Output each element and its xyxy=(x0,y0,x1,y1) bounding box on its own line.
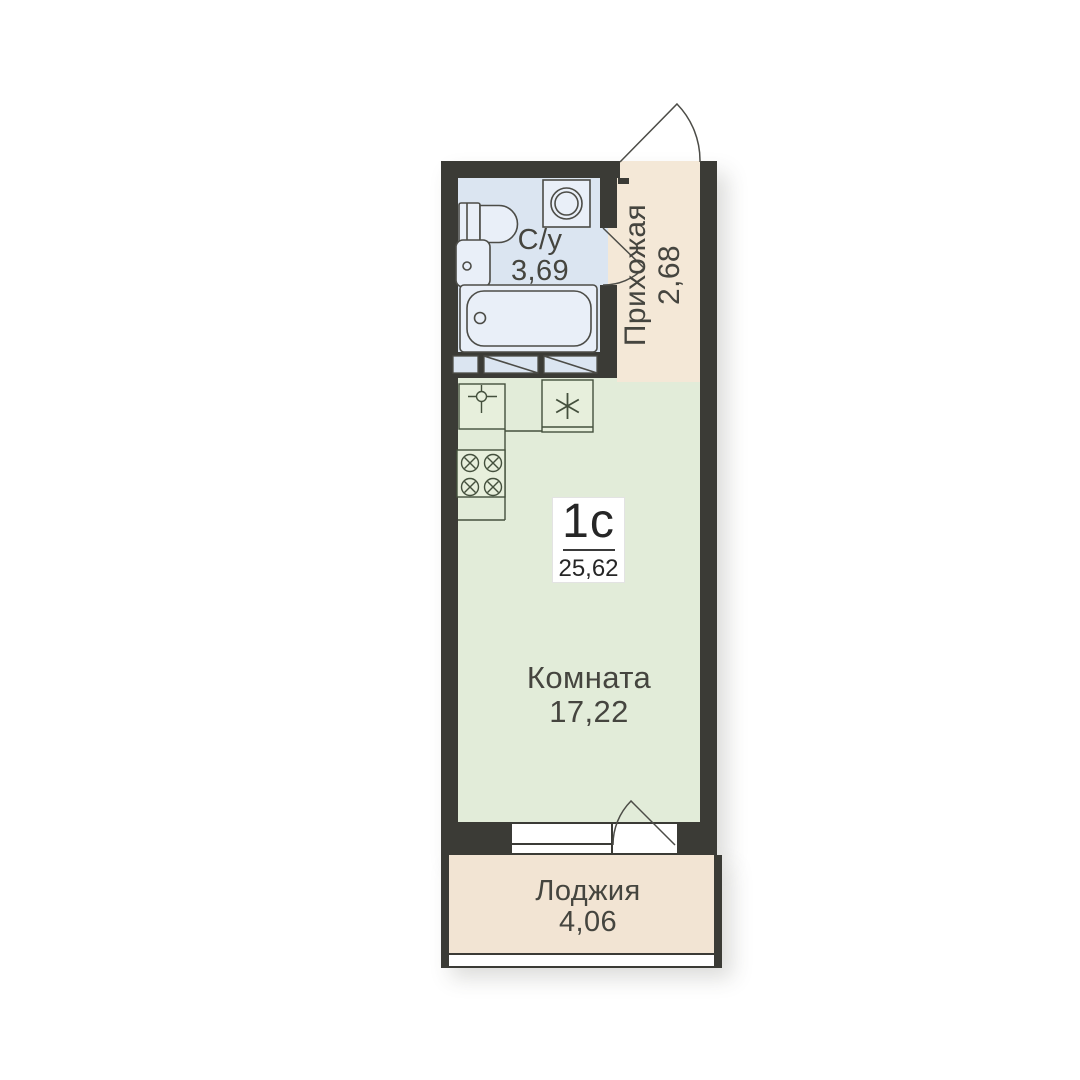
bathroom-label: С/у 3,69 xyxy=(470,225,610,287)
wall-loggia-right xyxy=(714,855,722,968)
unit-type: 1с xyxy=(562,499,615,545)
unit-badge: 1с 25,62 xyxy=(552,497,625,583)
wall-bottom-left xyxy=(441,822,510,855)
badge-divider xyxy=(563,549,615,551)
hallway-area: 2,68 xyxy=(653,175,687,375)
window-frame-line xyxy=(512,843,611,845)
hallway-name: Прихожая xyxy=(619,175,653,375)
living-room-label: Комната 17,22 xyxy=(489,661,689,729)
unit-total-area: 25,62 xyxy=(558,556,618,582)
wall-bathroom-bottom xyxy=(441,352,617,378)
balcony-door-opening xyxy=(613,822,677,855)
loggia-area: 4,06 xyxy=(488,907,688,938)
floor-plan: С/у 3,69 Прихожая 2,68 Комната 17,22 Лод… xyxy=(0,0,1080,1080)
wall-bathroom-hallway-upper xyxy=(600,178,617,228)
bathroom-area: 3,69 xyxy=(470,256,610,287)
window xyxy=(510,822,613,855)
living-room-floor xyxy=(458,378,700,822)
entrance-door-swing xyxy=(620,104,700,162)
wall-bottom-right xyxy=(677,822,717,855)
loggia-label: Лоджия 4,06 xyxy=(488,876,688,938)
wall-right xyxy=(700,161,717,855)
loggia-name: Лоджия xyxy=(488,876,688,907)
hallway-label: Прихожая 2,68 xyxy=(619,175,687,375)
bathroom-name: С/у xyxy=(470,225,610,256)
wall-loggia-left xyxy=(441,855,449,968)
wall-left xyxy=(441,161,458,855)
loggia-glazing xyxy=(449,953,714,968)
wall-top xyxy=(441,161,620,178)
living-room-name: Комната xyxy=(489,661,689,695)
living-room-area: 17,22 xyxy=(489,695,689,729)
